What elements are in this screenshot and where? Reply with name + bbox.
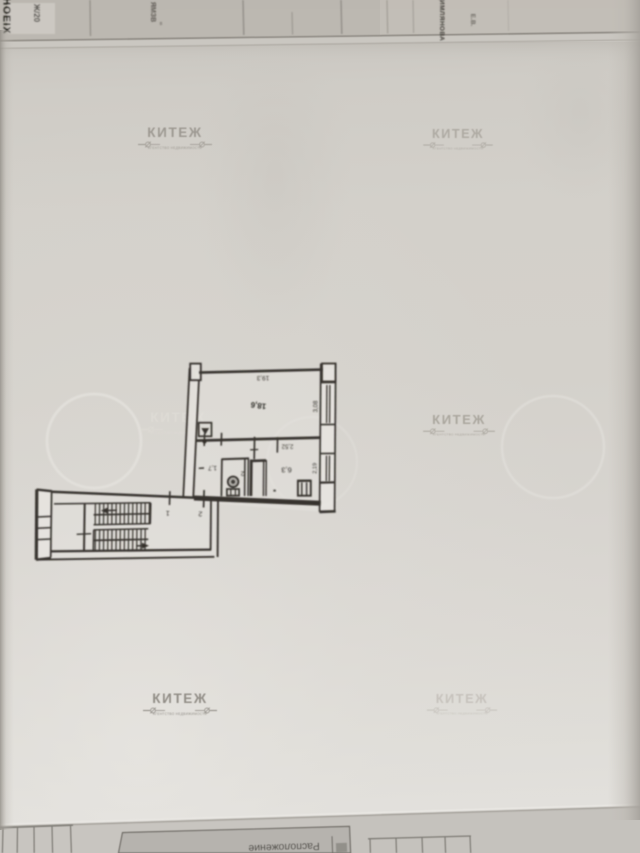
svg-text:НОЕIX: НОЕIX (1, 0, 13, 34)
svg-text:Ж/20: Ж/20 (32, 3, 41, 23)
svg-text:в: в (160, 21, 163, 27)
svg-text:1: 1 (165, 509, 170, 516)
svg-text:2,52: 2,52 (281, 443, 293, 449)
svg-text:Е.В.: Е.В. (469, 14, 476, 27)
svg-text:6,3: 6,3 (281, 466, 291, 475)
svg-text:2: 2 (198, 509, 203, 516)
svg-text:3,08: 3,08 (313, 400, 319, 412)
svg-text:ЯМЗВ: ЯМЗВ (149, 2, 156, 22)
svg-text:2,19: 2,19 (312, 463, 318, 474)
svg-text:19,3: 19,3 (256, 374, 269, 381)
svg-text:2: 2 (240, 470, 244, 477)
svg-text:1,7: 1,7 (208, 464, 217, 471)
svg-text:ЦИМЛЯНОВА: ЦИМЛЯНОВА (438, 0, 445, 41)
